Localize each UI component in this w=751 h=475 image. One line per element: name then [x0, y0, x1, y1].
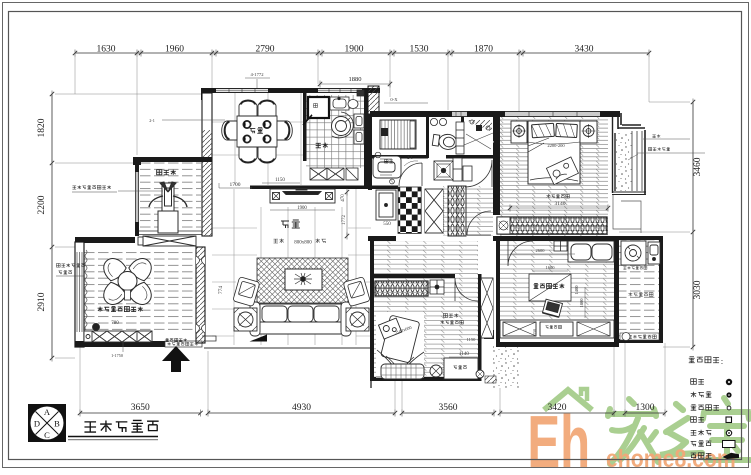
- svg-text:1700: 1700: [230, 182, 241, 188]
- svg-text:4930: 4930: [292, 403, 311, 413]
- svg-text:150: 150: [532, 329, 537, 335]
- svg-text:C: C: [44, 430, 50, 440]
- svg-text:1-1750: 1-1750: [111, 353, 123, 358]
- svg-text:3430: 3430: [575, 45, 594, 55]
- svg-text:2-1: 2-1: [149, 118, 155, 123]
- svg-text:2600: 2600: [536, 248, 546, 253]
- svg-text:800x800: 800x800: [294, 241, 312, 246]
- svg-text:1772: 1772: [342, 215, 347, 226]
- svg-text::: :: [721, 357, 723, 366]
- svg-text:ehome8.com: ehome8.com: [606, 444, 736, 470]
- svg-text:2200: 2200: [37, 195, 47, 214]
- svg-text:3460: 3460: [693, 157, 703, 176]
- svg-text:3650: 3650: [131, 403, 150, 413]
- svg-text:D: D: [34, 419, 40, 429]
- svg-text:774: 774: [218, 286, 224, 295]
- svg-text:1400: 1400: [574, 285, 579, 295]
- svg-text:1870: 1870: [474, 45, 493, 55]
- svg-text:1600: 1600: [546, 265, 556, 270]
- svg-text:1630: 1630: [97, 45, 116, 55]
- svg-text:3140: 3140: [555, 201, 566, 207]
- svg-text:1880: 1880: [349, 76, 362, 83]
- svg-text:1900: 1900: [345, 45, 364, 55]
- svg-text:3420: 3420: [548, 403, 567, 413]
- svg-text:2-1: 2-1: [407, 155, 413, 160]
- svg-text:1800: 1800: [579, 298, 584, 308]
- svg-text:A: A: [44, 407, 51, 417]
- svg-text:780: 780: [111, 321, 119, 326]
- svg-text:2790: 2790: [256, 45, 275, 55]
- svg-text:1820: 1820: [37, 118, 47, 137]
- svg-text:470: 470: [341, 194, 346, 202]
- svg-text:1300: 1300: [636, 403, 655, 413]
- svg-text:4-1772: 4-1772: [250, 72, 264, 77]
- svg-text:B: B: [54, 419, 60, 429]
- svg-text:2200-200: 2200-200: [547, 143, 565, 148]
- svg-text:1960: 1960: [165, 45, 184, 55]
- svg-text:550: 550: [383, 222, 391, 227]
- svg-text:1530: 1530: [410, 45, 429, 55]
- svg-text:1140: 1140: [459, 352, 469, 357]
- svg-text:1150: 1150: [275, 178, 285, 183]
- svg-text:1900: 1900: [297, 206, 307, 211]
- svg-text:3030: 3030: [693, 280, 703, 299]
- svg-text:1150: 1150: [467, 337, 477, 342]
- svg-text:3560: 3560: [439, 403, 458, 413]
- svg-text:0-X: 0-X: [390, 97, 398, 102]
- svg-text:2910: 2910: [37, 292, 47, 311]
